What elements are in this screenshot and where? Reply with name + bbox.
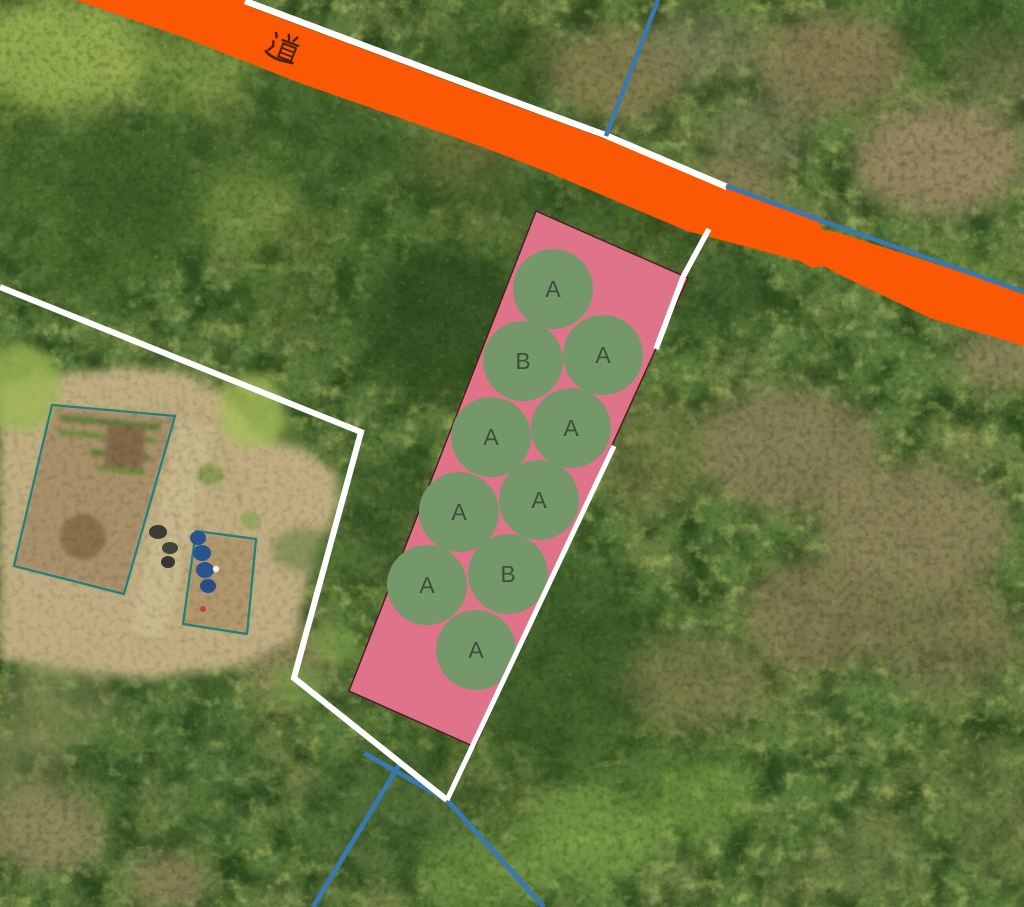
svg-text:A: A: [545, 276, 561, 302]
svg-text:A: A: [531, 487, 547, 513]
svg-text:A: A: [483, 424, 499, 450]
svg-text:A: A: [595, 342, 611, 368]
svg-text:A: A: [468, 637, 484, 663]
svg-text:A: A: [563, 415, 579, 441]
svg-text:A: A: [419, 572, 435, 598]
svg-text:B: B: [500, 561, 515, 587]
svg-text:A: A: [451, 499, 467, 525]
svg-text:B: B: [515, 348, 530, 374]
